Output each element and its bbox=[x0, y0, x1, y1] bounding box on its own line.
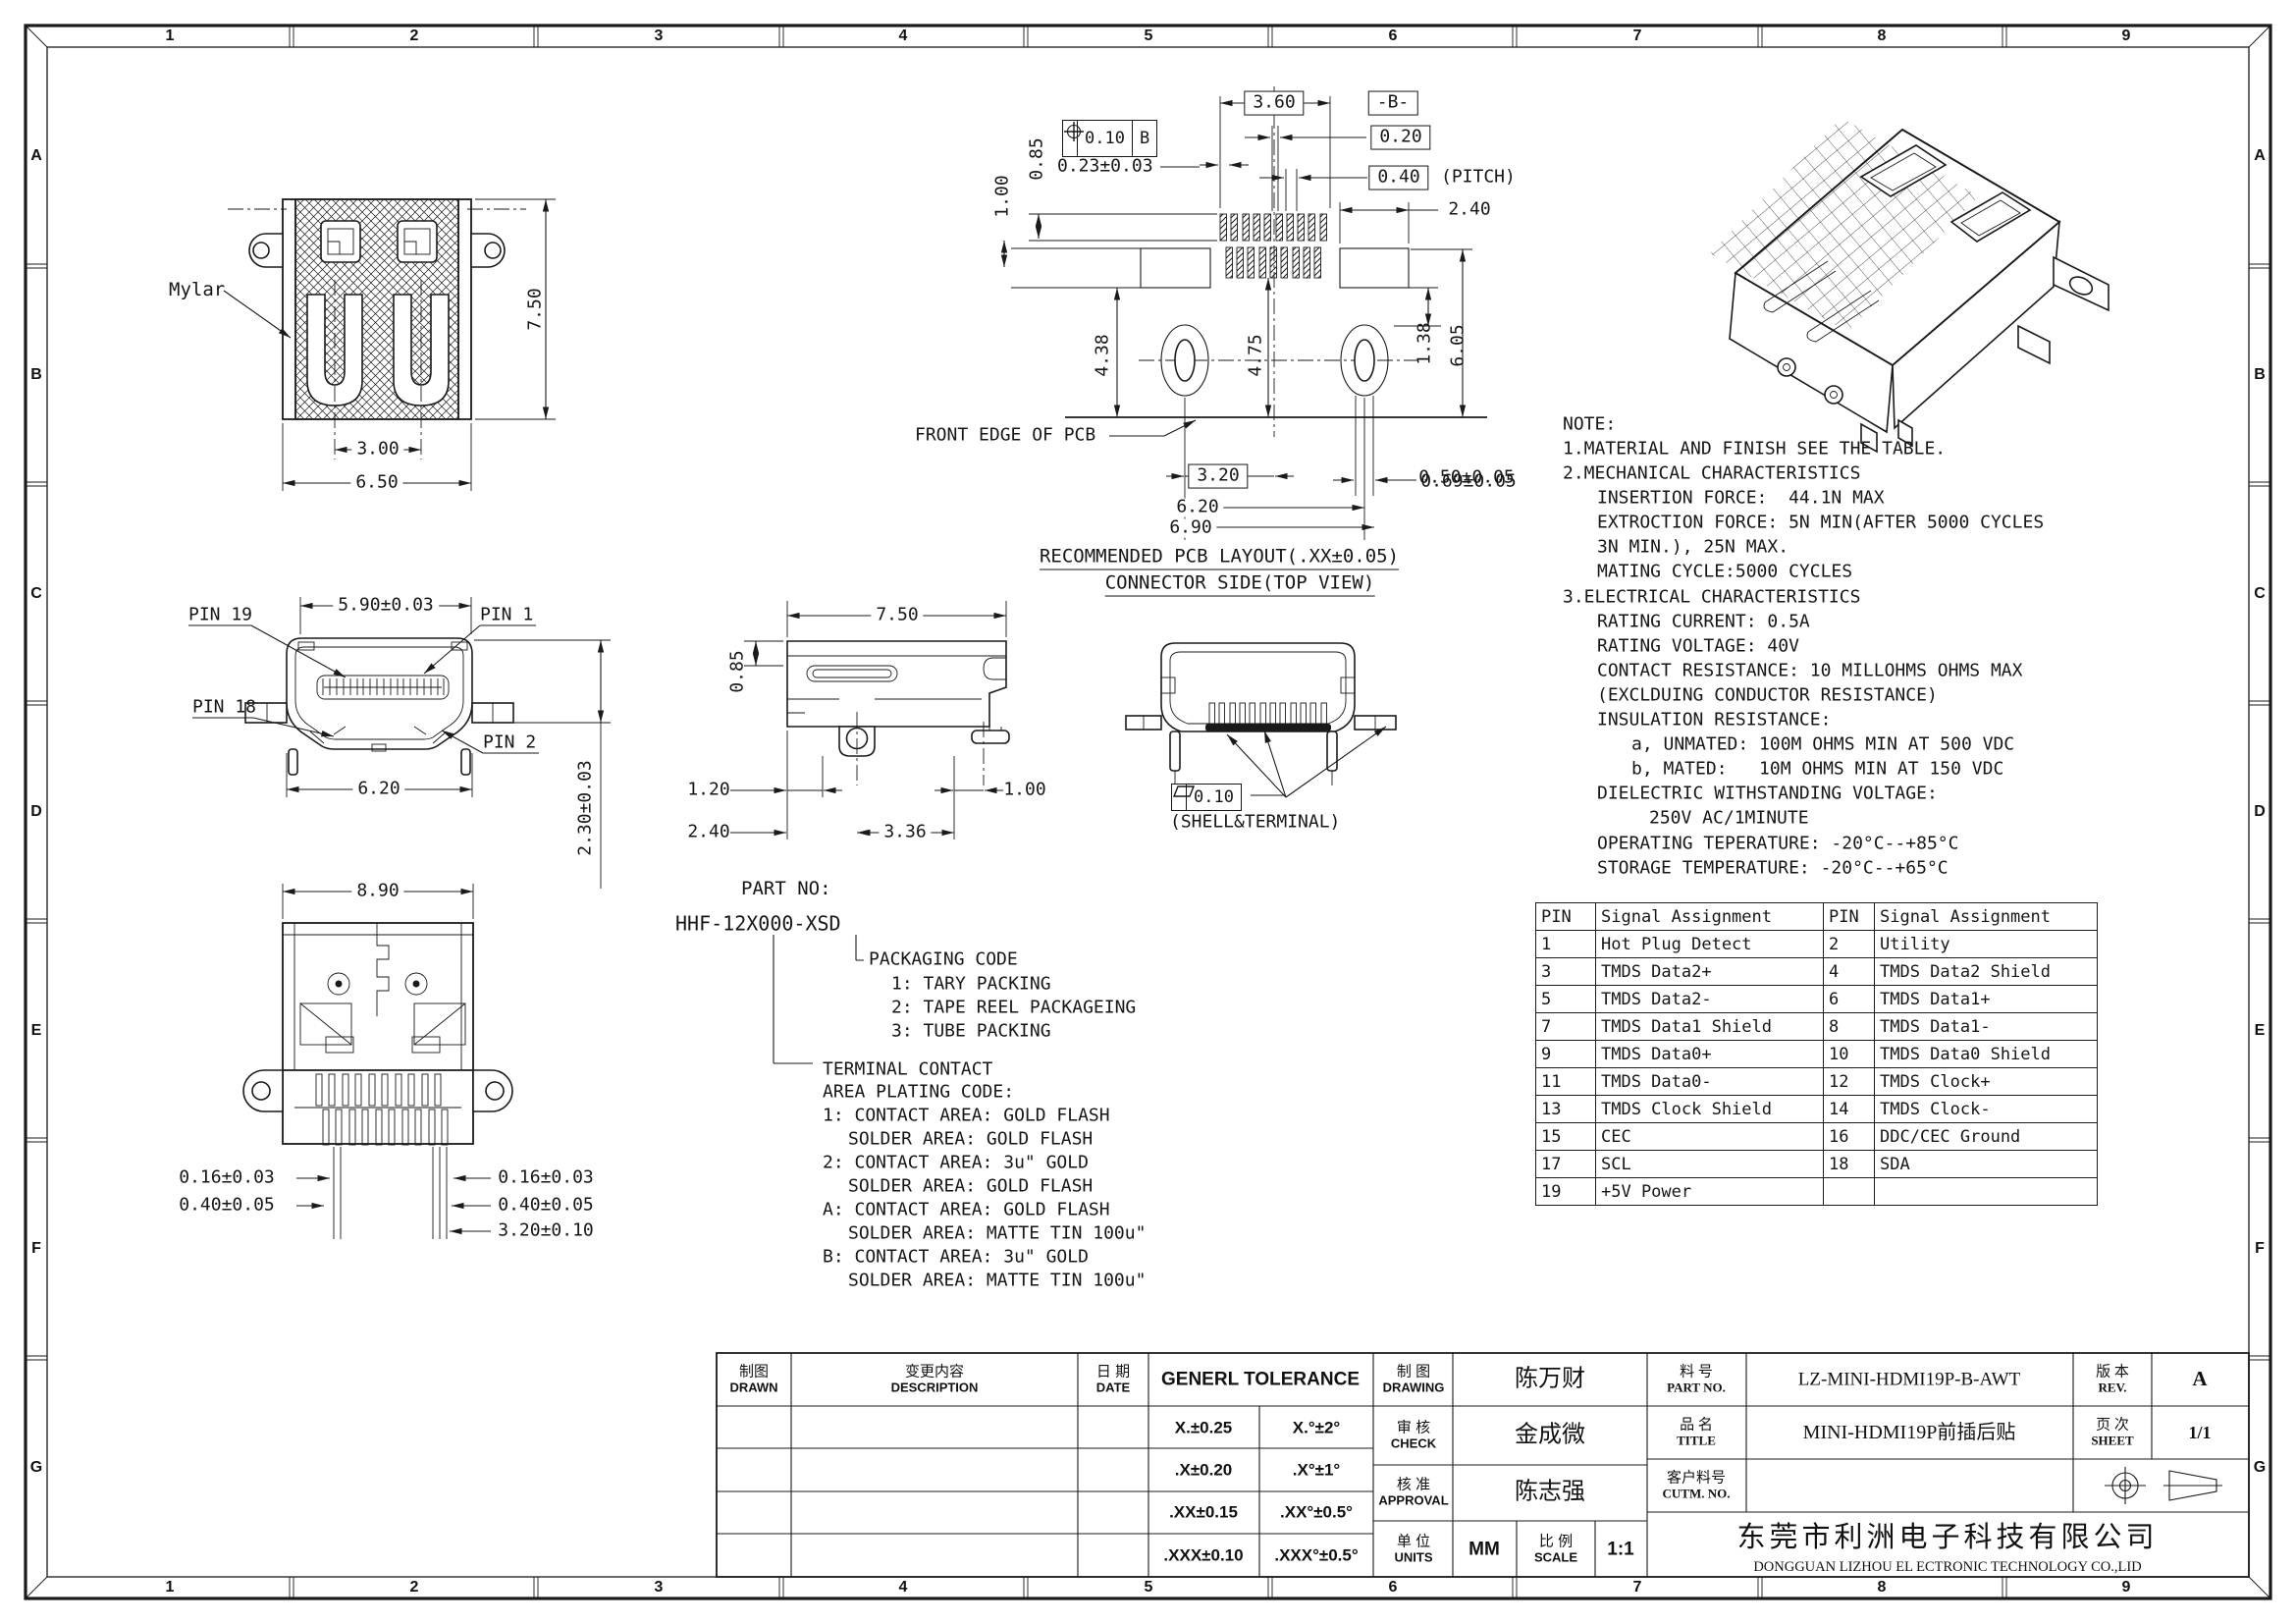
tb-tol-lin-2: .X±0.20 bbox=[1175, 1460, 1232, 1479]
zone-bottom-9: 9 bbox=[2122, 1579, 2131, 1597]
note-line-2: 2.MECHANICAL CHARACTERISTICS bbox=[1563, 465, 1860, 484]
zone-top-4: 4 bbox=[899, 27, 908, 45]
zone-right-B: B bbox=[2254, 366, 2266, 384]
pin-table-header-cell: PIN bbox=[1536, 903, 1596, 931]
pin-table-row-cell: SDA bbox=[1875, 1151, 2098, 1178]
note-line-12: INSULATION RESISTANCE: bbox=[1597, 712, 1831, 731]
note-line-9: RATING VOLTAGE: 40V bbox=[1597, 638, 1799, 657]
zone-top-9: 9 bbox=[2122, 27, 2131, 45]
zone-bottom-6: 6 bbox=[1389, 1579, 1398, 1597]
note-line-0: NOTE: bbox=[1563, 416, 1616, 435]
pin-table-row-cell: DDC/CEC Ground bbox=[1875, 1123, 2098, 1151]
dim-pcb-438: 4.38 bbox=[1095, 334, 1113, 376]
view-side bbox=[730, 601, 1009, 839]
tb-partno-label: 料 号PART NO. bbox=[1667, 1364, 1726, 1394]
projection-symbol bbox=[2105, 1467, 2222, 1504]
dim-pcb-240: 2.40 bbox=[1448, 201, 1490, 220]
pin18-label: PIN 18 bbox=[192, 699, 256, 718]
tb-company-cn: 东莞市利洲电子科技有限公司 bbox=[1736, 1522, 2158, 1553]
plating-ab: SOLDER AREA: MATTE TIN 100u" bbox=[848, 1225, 1146, 1244]
tb-description-label: 变更内容DESCRIPTION bbox=[891, 1364, 979, 1394]
dim-side-240: 2.40 bbox=[687, 824, 729, 842]
zone-right-E: E bbox=[2255, 1022, 2266, 1040]
pin-table-row-cell: TMDS Data0+ bbox=[1596, 1041, 1824, 1068]
tb-sheet-value: 1/1 bbox=[2188, 1423, 2211, 1442]
pin-table-row-cell: 19 bbox=[1536, 1178, 1596, 1206]
pin-table-row-cell bbox=[1824, 1178, 1875, 1206]
zone-right-A: A bbox=[2254, 147, 2266, 165]
pin-table-row-cell: 7 bbox=[1536, 1013, 1596, 1041]
pin1-label: PIN 1 bbox=[480, 607, 533, 625]
dim-pcb-023: 0.23±0.03 bbox=[1057, 158, 1153, 177]
plating-1a: 1: CONTACT AREA: GOLD FLASH bbox=[823, 1108, 1110, 1126]
tb-tol-lin-1: X.±0.25 bbox=[1175, 1418, 1232, 1436]
dim-rear-pitch: 3.00 bbox=[351, 441, 403, 460]
zone-left-G: G bbox=[30, 1459, 42, 1477]
note-line-7: 3.ELECTRICAL CHARACTERISTICS bbox=[1563, 589, 1860, 608]
pin-table-row-cell: 17 bbox=[1536, 1151, 1596, 1178]
pin-table-row-cell: TMDS Data2- bbox=[1596, 986, 1824, 1013]
pin-table-row-cell: 3 bbox=[1536, 958, 1596, 986]
pkg-code-2: 2: TAPE REEL PACKAGEING bbox=[891, 1000, 1136, 1018]
pin-table-row-cell: TMDS Data0 Shield bbox=[1875, 1041, 2098, 1068]
tb-tol-ang-4: .XXX°±0.5° bbox=[1274, 1545, 1358, 1564]
pcb-caption-line2: CONNECTOR SIDE(TOP VIEW) bbox=[1105, 574, 1375, 597]
partno-tree bbox=[774, 935, 864, 1063]
zone-bottom-2: 2 bbox=[410, 1579, 419, 1597]
dim-botleft-2: 0.40±0.05 bbox=[179, 1197, 275, 1216]
plating-title-2: AREA PLATING CODE: bbox=[823, 1084, 1014, 1103]
pin-table-row-cell: 4 bbox=[1824, 958, 1875, 986]
zone-right-F: F bbox=[2255, 1240, 2265, 1258]
tb-scale-value: 1:1 bbox=[1607, 1539, 1633, 1559]
view-section bbox=[1126, 643, 1396, 797]
zone-top-6: 6 bbox=[1389, 27, 1398, 45]
pkg-code-title: PACKAGING CODE bbox=[869, 951, 1018, 970]
plating-2b: SOLDER AREA: GOLD FLASH bbox=[848, 1178, 1093, 1197]
note-line-3: INSERTION FORCE: 44.1N MAX bbox=[1597, 490, 1885, 509]
dim-rear-height: 7.50 bbox=[527, 288, 546, 330]
pin-table-row-cell: TMDS Data0- bbox=[1596, 1068, 1824, 1096]
tb-drawing-name: 陈万财 bbox=[1515, 1367, 1585, 1393]
note-line-16: 250V AC/1MINUTE bbox=[1649, 810, 1809, 829]
note-line-17: OPERATING TEPERATURE: -20°C--+85°C bbox=[1597, 836, 1958, 854]
pin-table-row-cell: TMDS Clock+ bbox=[1875, 1068, 2098, 1096]
tb-approval-name: 陈志强 bbox=[1515, 1480, 1585, 1506]
shell-terminal-note: (SHELL&TERMINAL) bbox=[1170, 814, 1340, 833]
dim-front-tongue: 5.90±0.03 bbox=[333, 597, 439, 616]
pin-table-row-cell: Utility bbox=[1875, 931, 2098, 958]
zone-bottom-4: 4 bbox=[899, 1579, 908, 1597]
tb-check-label: 审 核CHECK bbox=[1391, 1420, 1436, 1450]
tb-units-value: MM bbox=[1468, 1539, 1500, 1559]
dim-side-width: 7.50 bbox=[871, 607, 923, 625]
tb-approval-label: 核 准APPROVAL bbox=[1378, 1477, 1448, 1507]
plating-1b: SOLDER AREA: GOLD FLASH bbox=[848, 1131, 1093, 1150]
drawing-sheet: Mylar7.503.006.50PIN 19PIN 1PIN 18PIN 25… bbox=[0, 0, 2296, 1624]
pin-table-row-cell: 8 bbox=[1824, 1013, 1875, 1041]
pin-table-row-cell: 11 bbox=[1536, 1068, 1596, 1096]
dim-pcb-475: 4.75 bbox=[1248, 334, 1266, 376]
zone-left-E: E bbox=[31, 1022, 42, 1040]
position-datum-ref: B bbox=[1132, 121, 1156, 156]
pin-table-row-cell: 14 bbox=[1824, 1096, 1875, 1123]
tb-check-name: 金成微 bbox=[1515, 1423, 1585, 1449]
pin-table-row-cell: 2 bbox=[1824, 931, 1875, 958]
note-line-5: 3N MIN.), 25N MAX. bbox=[1597, 539, 1789, 558]
dim-side-336: 3.36 bbox=[879, 824, 931, 842]
zone-top-7: 7 bbox=[1633, 27, 1642, 45]
dim-botright-2: 0.40±0.05 bbox=[498, 1197, 594, 1216]
tb-tol-ang-3: .XX°±0.5° bbox=[1280, 1502, 1353, 1521]
note-line-15: DIELECTRIC WITHSTANDING VOLTAGE: bbox=[1597, 785, 1938, 804]
pin-table-header-cell: PIN bbox=[1824, 903, 1875, 931]
tb-rev-label: 版 本REV. bbox=[2096, 1364, 2129, 1394]
view-bottom bbox=[243, 884, 512, 1239]
dim-bottom-width: 8.90 bbox=[351, 883, 403, 901]
dim-botright-3: 3.20±0.10 bbox=[498, 1222, 594, 1241]
pin-table-row-cell: 1 bbox=[1536, 931, 1596, 958]
dim-side-lip: 0.85 bbox=[729, 650, 748, 692]
note-line-8: RATING CURRENT: 0.5A bbox=[1597, 614, 1810, 632]
zone-top-2: 2 bbox=[410, 27, 419, 45]
note-line-11: (EXCLDUING CONDUCTOR RESISTANCE) bbox=[1597, 687, 1938, 706]
pin-table-header-cell: Signal Assignment bbox=[1875, 903, 2098, 931]
dim-rear-width: 6.50 bbox=[350, 474, 402, 493]
tb-drawn-label: 制图DRAWN bbox=[729, 1364, 777, 1394]
pin-table-row-cell: 9 bbox=[1536, 1041, 1596, 1068]
mylar-label: Mylar bbox=[169, 281, 225, 300]
zone-bottom-7: 7 bbox=[1633, 1579, 1642, 1597]
tb-title-value: MINI-HDMI19P前插后贴 bbox=[1803, 1422, 2016, 1443]
zone-left-C: C bbox=[30, 585, 42, 603]
pin-table-row-cell: TMDS Data1- bbox=[1875, 1013, 2098, 1041]
position-tolerance-value: 0.10 bbox=[1077, 121, 1132, 156]
tb-sheet-label: 页 次SHEET bbox=[2091, 1417, 2133, 1447]
pin-table-row-cell: 10 bbox=[1824, 1041, 1875, 1068]
dim-pcb-320: 3.20 bbox=[1188, 464, 1248, 489]
flatness-tolerance-frame: 0.10 bbox=[1171, 784, 1242, 811]
pin-table-row-cell: TMDS Data1 Shield bbox=[1596, 1013, 1824, 1041]
tb-company-en: DONGGUAN LIZHOU EL ECTRONIC TECHNOLOGY C… bbox=[1753, 1559, 2141, 1575]
zone-top-3: 3 bbox=[655, 27, 664, 45]
pin-table-row-cell: 18 bbox=[1824, 1151, 1875, 1178]
pin-table-row-cell: TMDS Data2 Shield bbox=[1875, 958, 2098, 986]
tb-tol-ang-1: X.°±2° bbox=[1293, 1418, 1340, 1436]
zone-right-D: D bbox=[2254, 803, 2266, 821]
zone-left-F: F bbox=[31, 1240, 41, 1258]
partno-code: HHF-12X000-XSD bbox=[675, 914, 841, 935]
tb-drawing-label: 制 图DRAWING bbox=[1383, 1364, 1445, 1394]
pin19-label: PIN 19 bbox=[188, 607, 252, 625]
pkg-code-1: 1: TARY PACKING bbox=[891, 976, 1051, 995]
note-line-4: EXTROCTION FORCE: 5N MIN(AFTER 5000 CYCL… bbox=[1597, 514, 2044, 533]
dim-pcb-overlap-b: 0.69±0.05 bbox=[1420, 473, 1517, 492]
partno-title: PART NO: bbox=[741, 880, 831, 899]
note-line-1: 1.MATERIAL AND FINISH SEE THE TABLE. bbox=[1563, 441, 1946, 460]
note-line-13: a, UNMATED: 100M OHMS MIN AT 500 VDC bbox=[1631, 736, 2014, 755]
pin-table-row-cell: 13 bbox=[1536, 1096, 1596, 1123]
pin-table-row-cell: TMDS Clock Shield bbox=[1596, 1096, 1824, 1123]
dim-pcb-085: 0.85 bbox=[1029, 137, 1047, 180]
tb-tol-lin-4: .XXX±0.10 bbox=[1163, 1545, 1243, 1564]
position-icon bbox=[1063, 121, 1077, 156]
zone-bottom-3: 3 bbox=[655, 1579, 664, 1597]
dim-botleft-1: 0.16±0.03 bbox=[179, 1169, 275, 1188]
dim-side-100: 1.00 bbox=[1003, 782, 1045, 800]
dim-pcb-138: 1.38 bbox=[1416, 322, 1435, 364]
pin-table-row-cell: 5 bbox=[1536, 986, 1596, 1013]
zone-bottom-1: 1 bbox=[166, 1579, 175, 1597]
pin-table-row-cell: TMDS Data2+ bbox=[1596, 958, 1824, 986]
zone-bottom-5: 5 bbox=[1145, 1579, 1153, 1597]
note-line-14: b, MATED: 10M OHMS MIN AT 150 VDC bbox=[1631, 761, 2003, 780]
plating-ba: B: CONTACT AREA: 3u" GOLD bbox=[823, 1249, 1089, 1268]
tb-partno-value: LZ-MINI-HDMI19P-B-AWT bbox=[1798, 1369, 2020, 1389]
pin-assignment-table: PINSignal AssignmentPINSignal Assignment… bbox=[1535, 902, 2098, 1206]
tb-rev-value: A bbox=[2192, 1368, 2207, 1391]
pin2-label: PIN 2 bbox=[483, 734, 536, 753]
note-line-6: MATING CYCLE:5000 CYCLES bbox=[1597, 564, 1852, 582]
note-line-18: STORAGE TEMPERATURE: -20°C--+65°C bbox=[1597, 860, 1949, 879]
dim-front-height: 2.30±0.03 bbox=[577, 760, 596, 856]
zone-top-8: 8 bbox=[1878, 27, 1887, 45]
view-isometric bbox=[1710, 118, 2109, 452]
zone-left-D: D bbox=[30, 803, 42, 821]
pin-table-row-cell: +5V Power bbox=[1596, 1178, 1824, 1206]
zone-right-G: G bbox=[2254, 1459, 2266, 1477]
pin-table-row-cell: SCL bbox=[1596, 1151, 1824, 1178]
tb-units-label: 单 位UNITS bbox=[1395, 1534, 1433, 1564]
pcb-caption-line1: RECOMMENDED PCB LAYOUT(.XX±0.05) bbox=[1040, 548, 1399, 570]
dim-pcb-040: 0.40 bbox=[1368, 166, 1428, 190]
tb-title-label: 品 名TITLE bbox=[1677, 1417, 1716, 1447]
pin-table-row-cell: Hot Plug Detect bbox=[1596, 931, 1824, 958]
zone-right-C: C bbox=[2254, 585, 2266, 603]
tb-tol-lin-3: .XX±0.15 bbox=[1169, 1502, 1238, 1521]
position-tolerance-frame: 0.10 B bbox=[1062, 120, 1157, 157]
pin-table-row-cell: TMDS Data1+ bbox=[1875, 986, 2098, 1013]
flatness-icon bbox=[1172, 785, 1186, 810]
pitch-label: (PITCH) bbox=[1441, 169, 1516, 188]
plating-aa: A: CONTACT AREA: GOLD FLASH bbox=[823, 1202, 1110, 1220]
zone-top-5: 5 bbox=[1145, 27, 1153, 45]
zone-left-B: B bbox=[30, 366, 42, 384]
dim-pcb-100: 1.00 bbox=[994, 175, 1013, 217]
tb-date-label: 日 期DATE bbox=[1096, 1364, 1130, 1394]
pin-table-row-cell: TMDS Clock- bbox=[1875, 1096, 2098, 1123]
pin-table-row-cell: 6 bbox=[1824, 986, 1875, 1013]
zone-top-1: 1 bbox=[166, 27, 175, 45]
pin-table-row-cell: 15 bbox=[1536, 1123, 1596, 1151]
tb-tol-ang-2: .X°±1° bbox=[1293, 1460, 1340, 1479]
dim-front-width: 6.20 bbox=[352, 781, 404, 799]
plating-title-1: TERMINAL CONTACT bbox=[823, 1061, 992, 1080]
pin-table-row-cell bbox=[1875, 1178, 2098, 1206]
plating-2a: 2: CONTACT AREA: 3u" GOLD bbox=[823, 1155, 1089, 1173]
pin-table-row-cell: 16 bbox=[1824, 1123, 1875, 1151]
front-edge-label: FRONT EDGE OF PCB bbox=[915, 427, 1095, 446]
dim-side-120: 1.20 bbox=[687, 782, 729, 800]
note-line-10: CONTACT RESISTANCE: 10 MILLOHMS OHMS MAX bbox=[1597, 663, 2022, 681]
pin-table-header-cell: Signal Assignment bbox=[1596, 903, 1824, 931]
dim-pcb-020: 0.20 bbox=[1370, 126, 1430, 150]
datum-b-label: -B- bbox=[1368, 91, 1418, 116]
dim-pcb-620: 6.20 bbox=[1171, 499, 1223, 517]
tb-tolerance-title: GENERL TOLERANCE bbox=[1161, 1369, 1360, 1389]
dim-botright-1: 0.16±0.03 bbox=[498, 1169, 594, 1188]
zone-left-A: A bbox=[30, 147, 42, 165]
pkg-code-3: 3: TUBE PACKING bbox=[891, 1023, 1051, 1042]
tb-cutm-label: 客户料号CUTM. NO. bbox=[1663, 1470, 1731, 1500]
pin-table-row-cell: CEC bbox=[1596, 1123, 1824, 1151]
dim-pcb-690: 6.90 bbox=[1164, 519, 1216, 538]
view-front bbox=[188, 597, 611, 889]
tb-scale-label: 比 例SCALE bbox=[1534, 1534, 1577, 1564]
plating-bb: SOLDER AREA: MATTE TIN 100u" bbox=[848, 1272, 1146, 1291]
dim-pcb-605: 6.05 bbox=[1450, 324, 1468, 366]
zone-bottom-8: 8 bbox=[1878, 1579, 1887, 1597]
dim-pcb-360: 3.60 bbox=[1244, 91, 1304, 116]
pin-table-row-cell: 12 bbox=[1824, 1068, 1875, 1096]
